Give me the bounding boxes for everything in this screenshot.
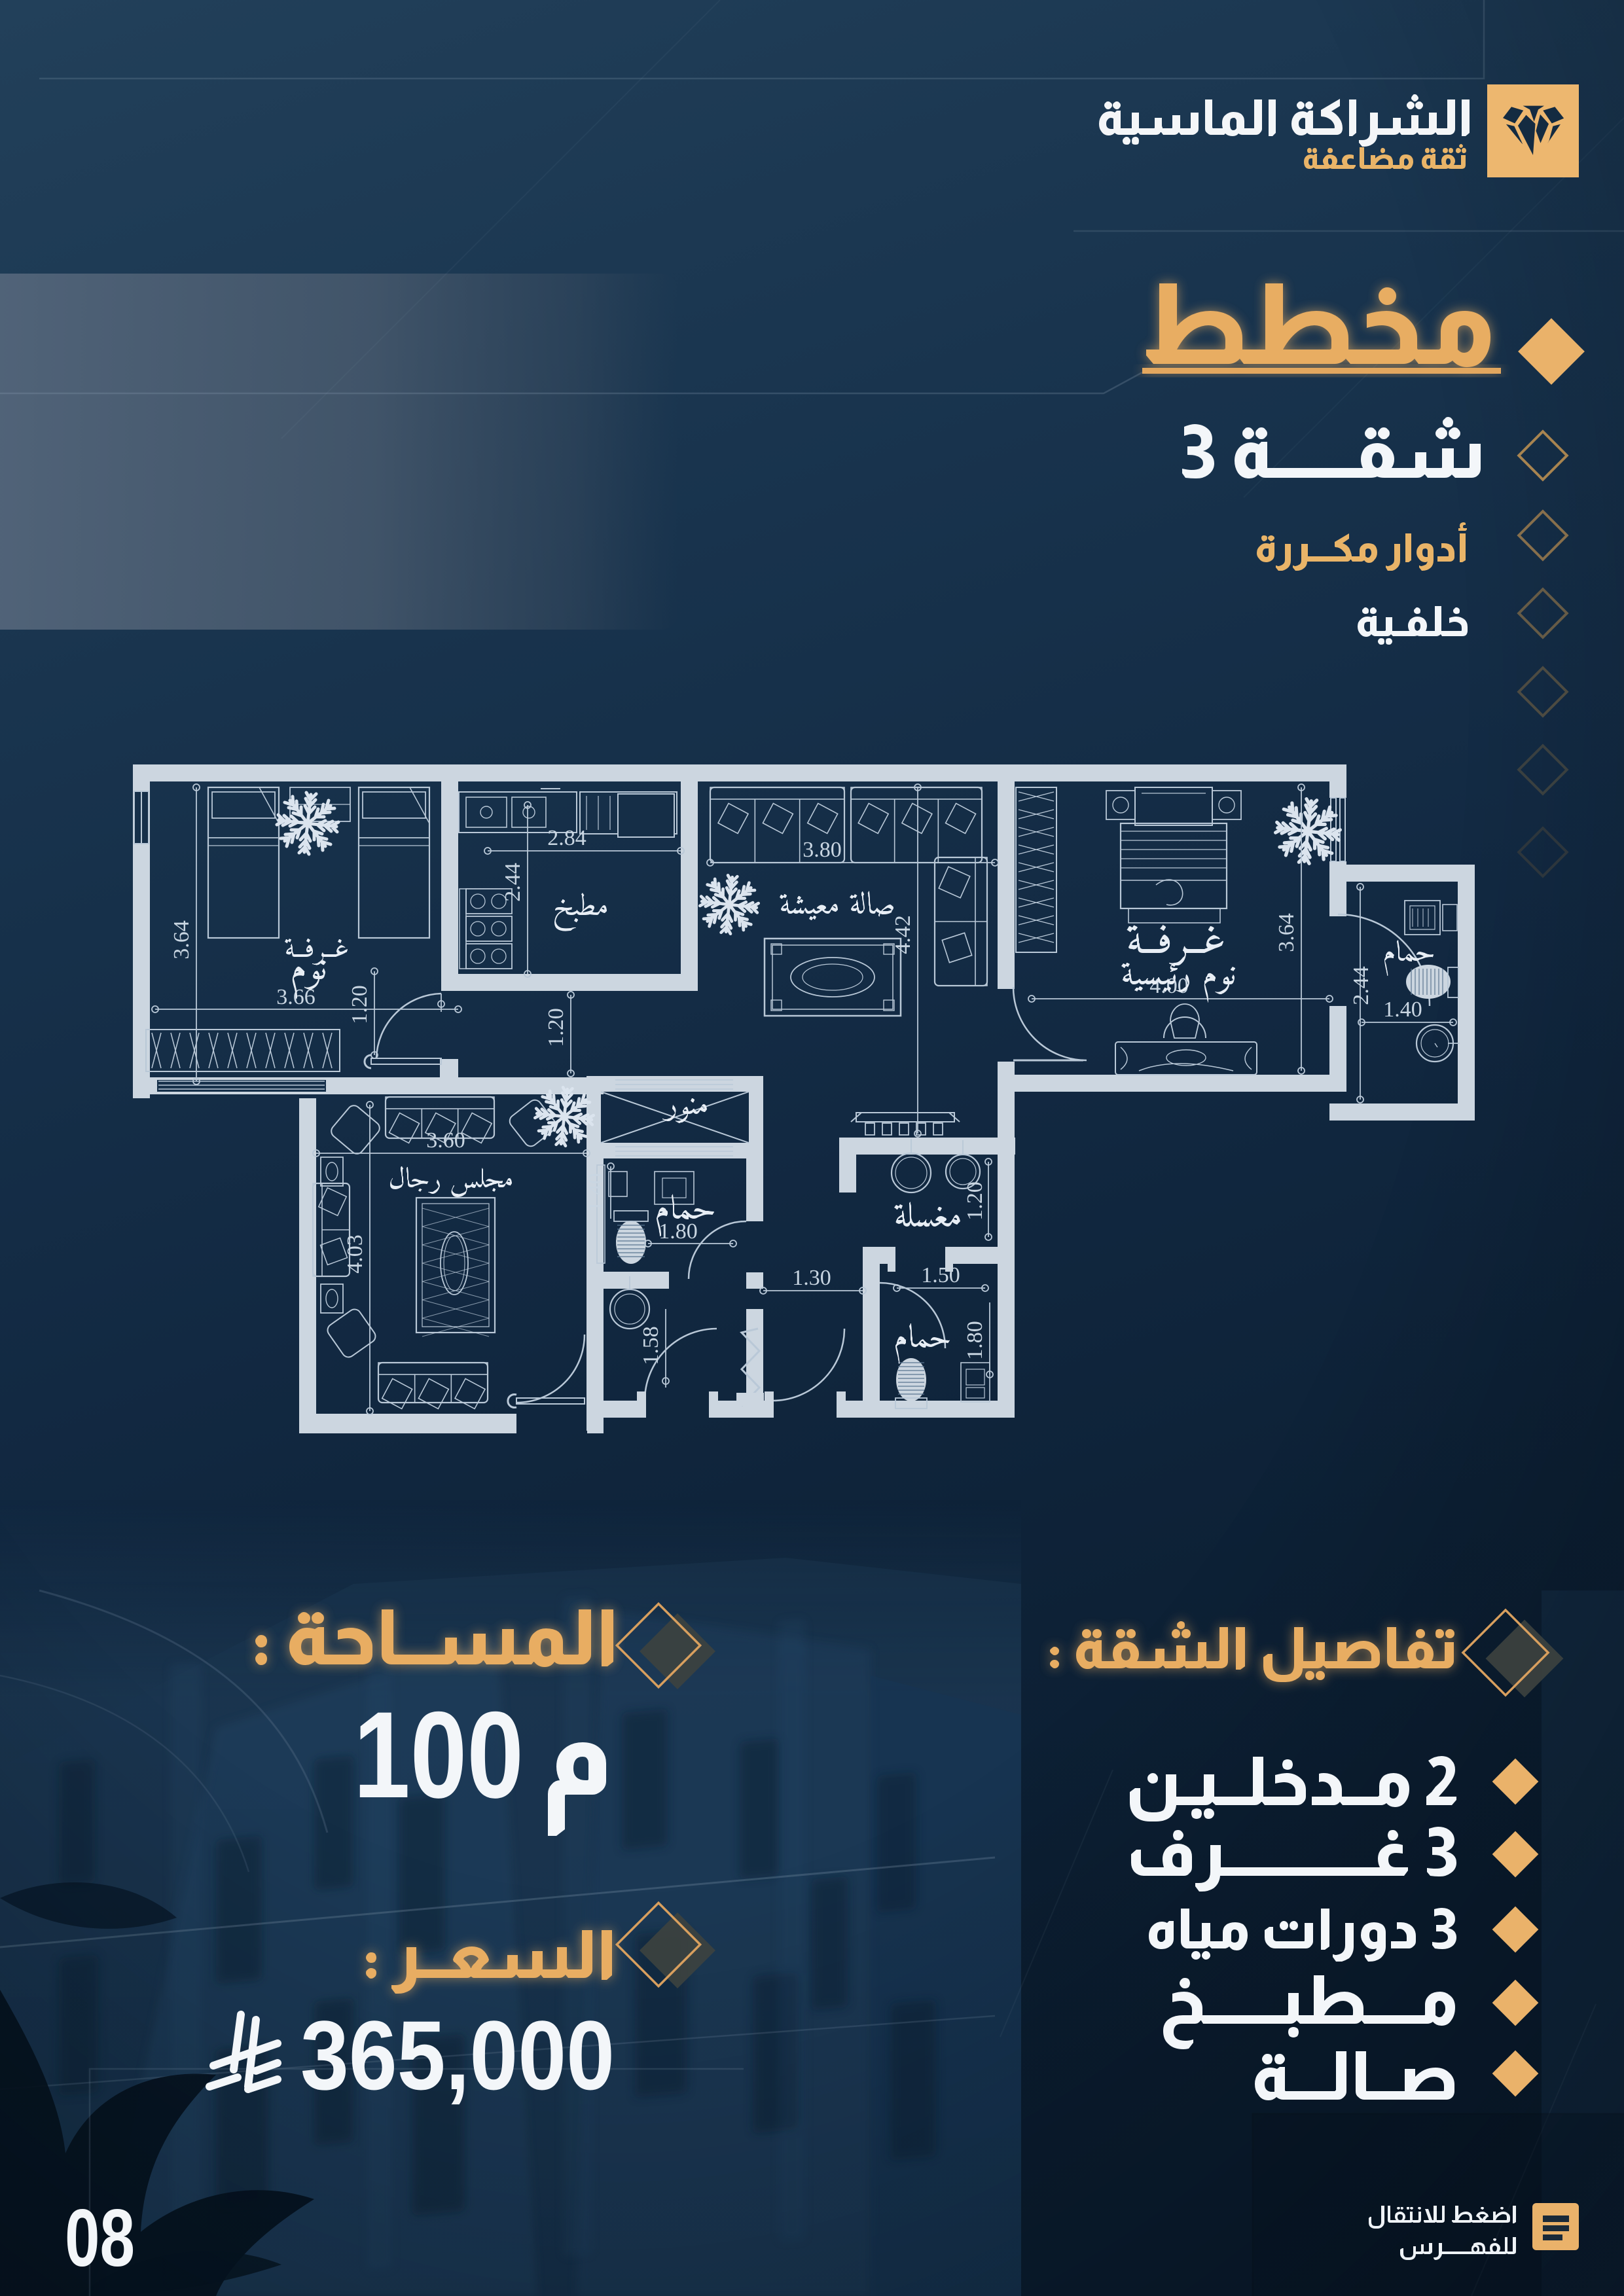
svg-text:2.84: 2.84	[547, 826, 586, 850]
svg-text:1.80: 1.80	[963, 1321, 987, 1360]
svg-text:100: 100	[353, 1686, 524, 1823]
svg-text:1.40: 1.40	[1383, 997, 1422, 1022]
svg-text:1.30: 1.30	[792, 1266, 831, 1290]
svg-text:1.40: 1.40	[584, 1173, 608, 1212]
svg-text:4.42: 4.42	[891, 915, 915, 954]
svg-text:3.80: 3.80	[803, 838, 842, 862]
svg-text:1.20: 1.20	[963, 1181, 987, 1221]
svg-text:1.20: 1.20	[348, 985, 372, 1024]
svg-text:4.00: 4.00	[1149, 974, 1189, 998]
svg-text:1.20: 1.20	[544, 1008, 568, 1047]
svg-text:1.58: 1.58	[639, 1326, 663, 1365]
svg-text:3.64: 3.64	[170, 920, 194, 960]
svg-text:365,000: 365,000	[300, 2000, 615, 2110]
svg-text:1.50: 1.50	[921, 1263, 960, 1287]
svg-text:2.44: 2.44	[1349, 966, 1373, 1005]
svg-text:3.60: 3.60	[426, 1128, 465, 1153]
svg-text:08: 08	[65, 2193, 135, 2284]
svg-text:4.03: 4.03	[343, 1234, 367, 1274]
svg-text:2.44: 2.44	[501, 863, 525, 902]
svg-text:1.80: 1.80	[659, 1219, 698, 1244]
svg-text:3.64: 3.64	[1274, 913, 1299, 952]
